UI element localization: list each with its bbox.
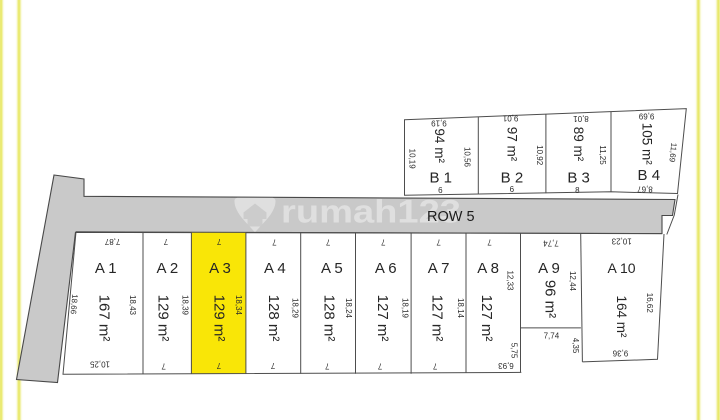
svg-text:8,67: 8,67: [637, 184, 653, 193]
svg-text:7: 7: [270, 361, 275, 370]
svg-text:18,34: 18,34: [234, 295, 243, 316]
svg-text:128 m²: 128 m²: [265, 295, 282, 342]
svg-text:94 m²: 94 m²: [432, 128, 447, 163]
svg-text:7: 7: [216, 237, 221, 246]
svg-text:A 3: A 3: [209, 260, 231, 277]
svg-text:167 m²: 167 m²: [96, 295, 113, 342]
svg-text:97 m²: 97 m²: [504, 127, 519, 162]
svg-text:A 9: A 9: [538, 260, 560, 277]
svg-text:127 m²: 127 m²: [429, 295, 446, 342]
svg-text:12,44: 12,44: [568, 271, 577, 292]
svg-text:B 1: B 1: [429, 170, 452, 187]
svg-text:18,43: 18,43: [128, 295, 137, 316]
svg-text:A 10: A 10: [607, 260, 635, 276]
svg-text:7: 7: [216, 361, 221, 370]
svg-text:B 2: B 2: [501, 170, 524, 187]
svg-text:129 m²: 129 m²: [154, 295, 171, 342]
svg-text:105 m²: 105 m²: [640, 123, 655, 166]
svg-text:B 4: B 4: [638, 167, 661, 184]
svg-text:8,01: 8,01: [573, 114, 589, 123]
svg-text:10,25: 10,25: [89, 359, 110, 368]
svg-text:18,19: 18,19: [401, 298, 410, 319]
svg-text:18,24: 18,24: [344, 298, 353, 319]
svg-text:7: 7: [377, 362, 382, 371]
svg-text:10,56: 10,56: [462, 147, 471, 168]
svg-text:128 m²: 128 m²: [321, 295, 338, 342]
svg-text:89 m²: 89 m²: [571, 127, 586, 162]
svg-text:10,92: 10,92: [535, 145, 544, 166]
svg-text:8: 8: [575, 186, 580, 195]
svg-text:ROW 5: ROW 5: [427, 209, 475, 225]
svg-text:7,74: 7,74: [543, 239, 559, 248]
svg-text:6: 6: [438, 186, 443, 195]
svg-text:96 m²: 96 m²: [542, 280, 559, 318]
svg-text:18,14: 18,14: [456, 298, 465, 319]
svg-text:7,74: 7,74: [544, 331, 560, 340]
svg-text:4,35: 4,35: [571, 338, 580, 354]
svg-text:7: 7: [272, 237, 277, 246]
svg-text:129 m²: 129 m²: [210, 295, 227, 342]
svg-text:10,23: 10,23: [611, 237, 632, 246]
svg-text:6,93: 6,93: [498, 361, 514, 370]
svg-text:7: 7: [381, 237, 386, 246]
svg-text:7: 7: [432, 362, 437, 371]
svg-text:9,19: 9,19: [431, 118, 447, 127]
svg-text:18,66: 18,66: [69, 294, 80, 315]
svg-text:A 1: A 1: [95, 260, 117, 277]
svg-text:16,62: 16,62: [645, 293, 654, 314]
svg-text:B 3: B 3: [567, 170, 590, 187]
svg-text:127 m²: 127 m²: [478, 295, 495, 342]
svg-text:7: 7: [325, 237, 330, 246]
svg-text:12,33: 12,33: [506, 270, 515, 291]
svg-text:11,25: 11,25: [598, 145, 607, 165]
svg-text:A 7: A 7: [428, 260, 450, 277]
svg-text:5,75: 5,75: [510, 343, 519, 359]
svg-text:164 m²: 164 m²: [614, 295, 629, 338]
svg-text:9,69: 9,69: [638, 112, 654, 121]
svg-text:127 m²: 127 m²: [374, 295, 391, 342]
svg-text:A 2: A 2: [157, 260, 179, 277]
svg-text:7,87: 7,87: [104, 237, 120, 246]
svg-text:7: 7: [436, 237, 441, 246]
svg-text:7: 7: [487, 237, 492, 246]
svg-text:9,36: 9,36: [612, 348, 628, 357]
svg-text:A 8: A 8: [477, 260, 499, 277]
svg-text:7: 7: [163, 237, 168, 246]
svg-text:9,01: 9,01: [502, 114, 518, 123]
svg-text:A 5: A 5: [321, 260, 343, 277]
svg-text:18,29: 18,29: [290, 298, 299, 319]
svg-text:7: 7: [161, 361, 166, 370]
svg-text:18,39: 18,39: [181, 295, 190, 316]
svg-text:10,19: 10,19: [408, 149, 417, 170]
svg-text:A 6: A 6: [375, 260, 397, 277]
svg-text:A 4: A 4: [264, 260, 286, 277]
svg-text:7: 7: [325, 362, 330, 371]
